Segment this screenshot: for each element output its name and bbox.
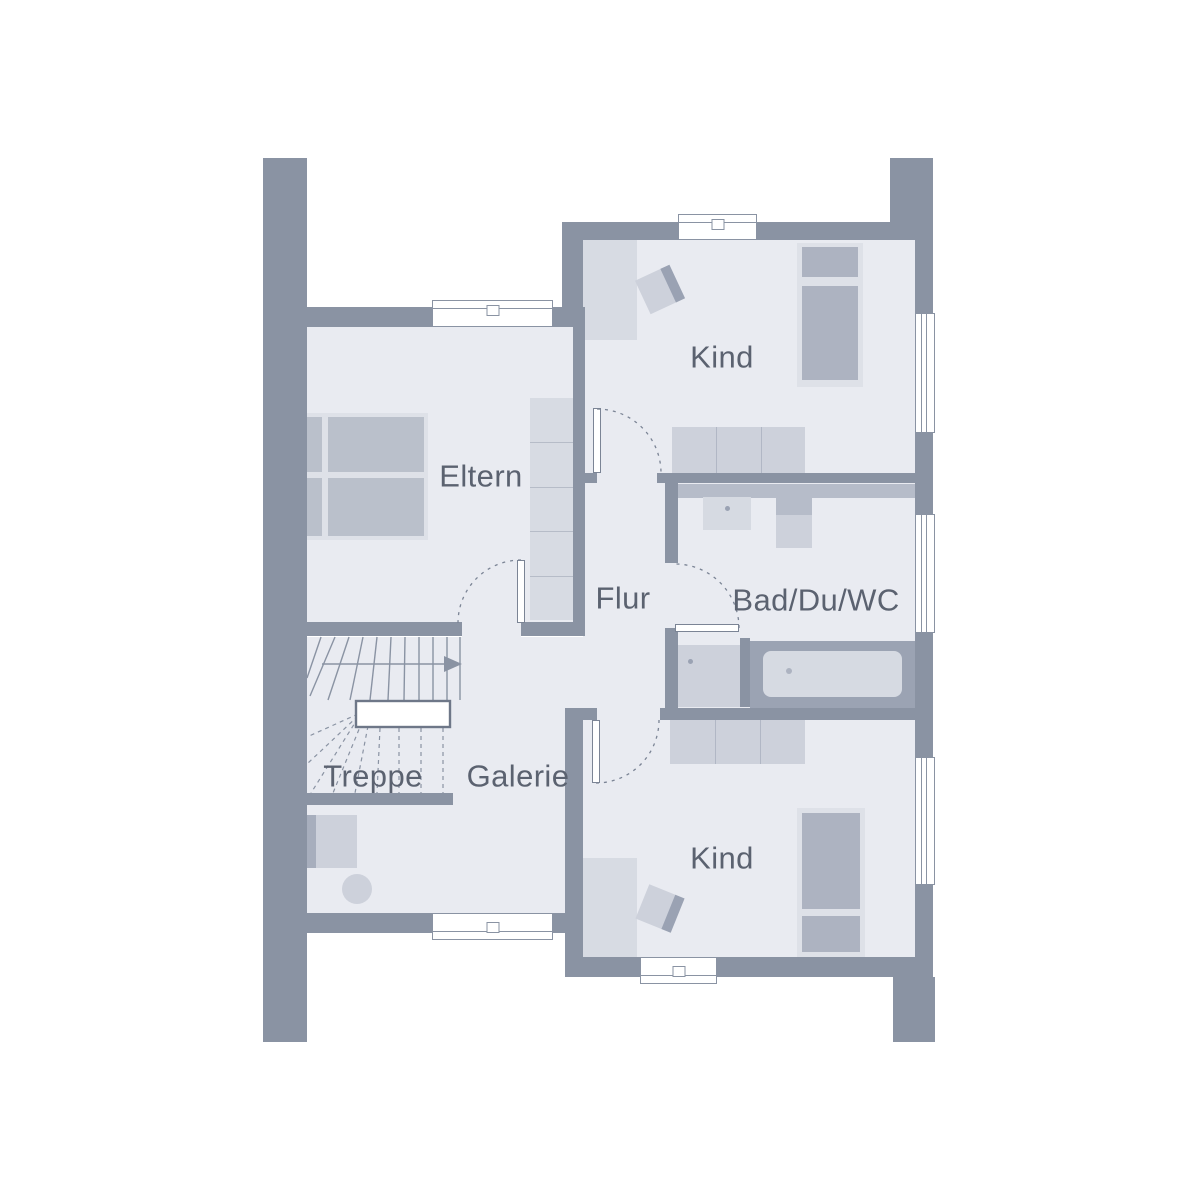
floor-plan: Eltern Kind Flur Bad/Du/WC Treppe Galeri… [0, 0, 1200, 1200]
room-label-eltern: Eltern [439, 461, 522, 492]
room-label-kind-bottom: Kind [690, 843, 754, 874]
room-label-bad: Bad/Du/WC [732, 585, 899, 616]
room-label-treppe: Treppe [323, 761, 422, 792]
room-label-kind-top: Kind [690, 342, 754, 373]
room-label-flur: Flur [596, 583, 651, 614]
room-label-galerie: Galerie [467, 761, 570, 792]
